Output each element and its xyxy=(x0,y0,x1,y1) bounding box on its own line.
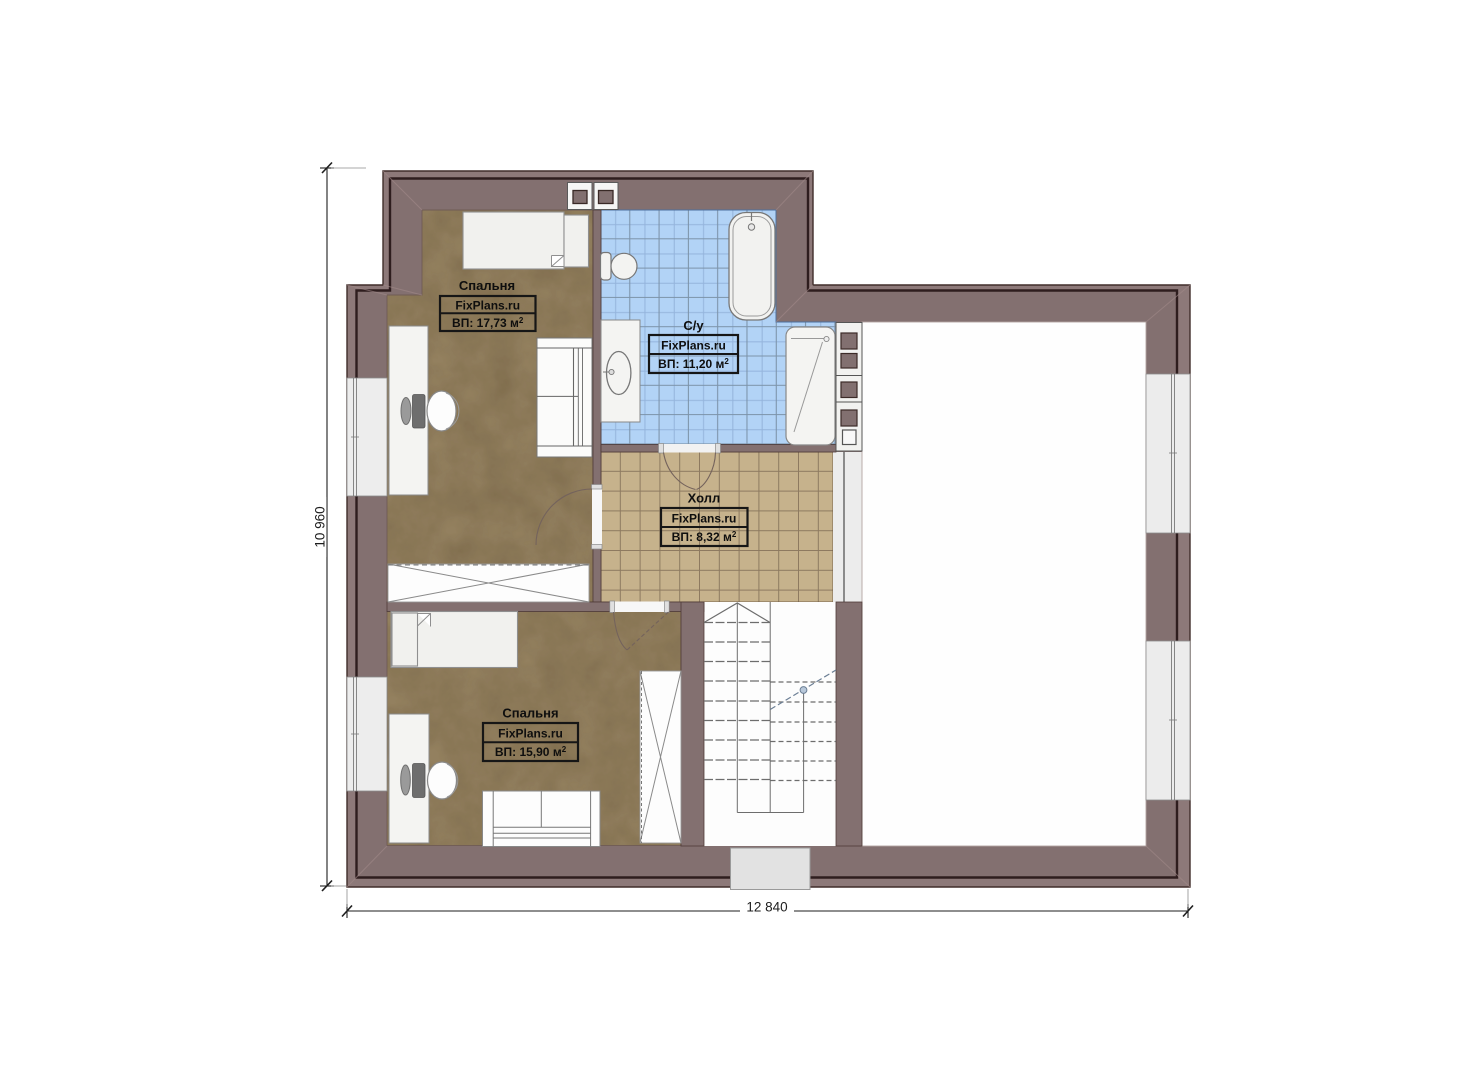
svg-text:Холл: Холл xyxy=(688,491,721,506)
svg-text:ВП: 17,73 м2: ВП: 17,73 м2 xyxy=(452,316,524,330)
svg-text:С/у: С/у xyxy=(683,318,704,333)
svg-text:ВП: 11,20 м2: ВП: 11,20 м2 xyxy=(658,357,729,371)
svg-text:Спальня: Спальня xyxy=(502,706,558,721)
svg-text:Спальня: Спальня xyxy=(459,278,515,293)
svg-text:FixPlans.ru: FixPlans.ru xyxy=(661,339,726,353)
svg-text:FixPlans.ru: FixPlans.ru xyxy=(455,299,520,313)
svg-text:FixPlans.ru: FixPlans.ru xyxy=(672,512,737,526)
svg-text:FixPlans.ru: FixPlans.ru xyxy=(498,727,563,741)
svg-text:12 840: 12 840 xyxy=(746,900,787,915)
svg-text:ВП: 15,90 м2: ВП: 15,90 м2 xyxy=(495,745,567,759)
svg-text:ВП: 8,32 м2: ВП: 8,32 м2 xyxy=(672,530,737,544)
svg-text:10 960: 10 960 xyxy=(313,506,328,547)
